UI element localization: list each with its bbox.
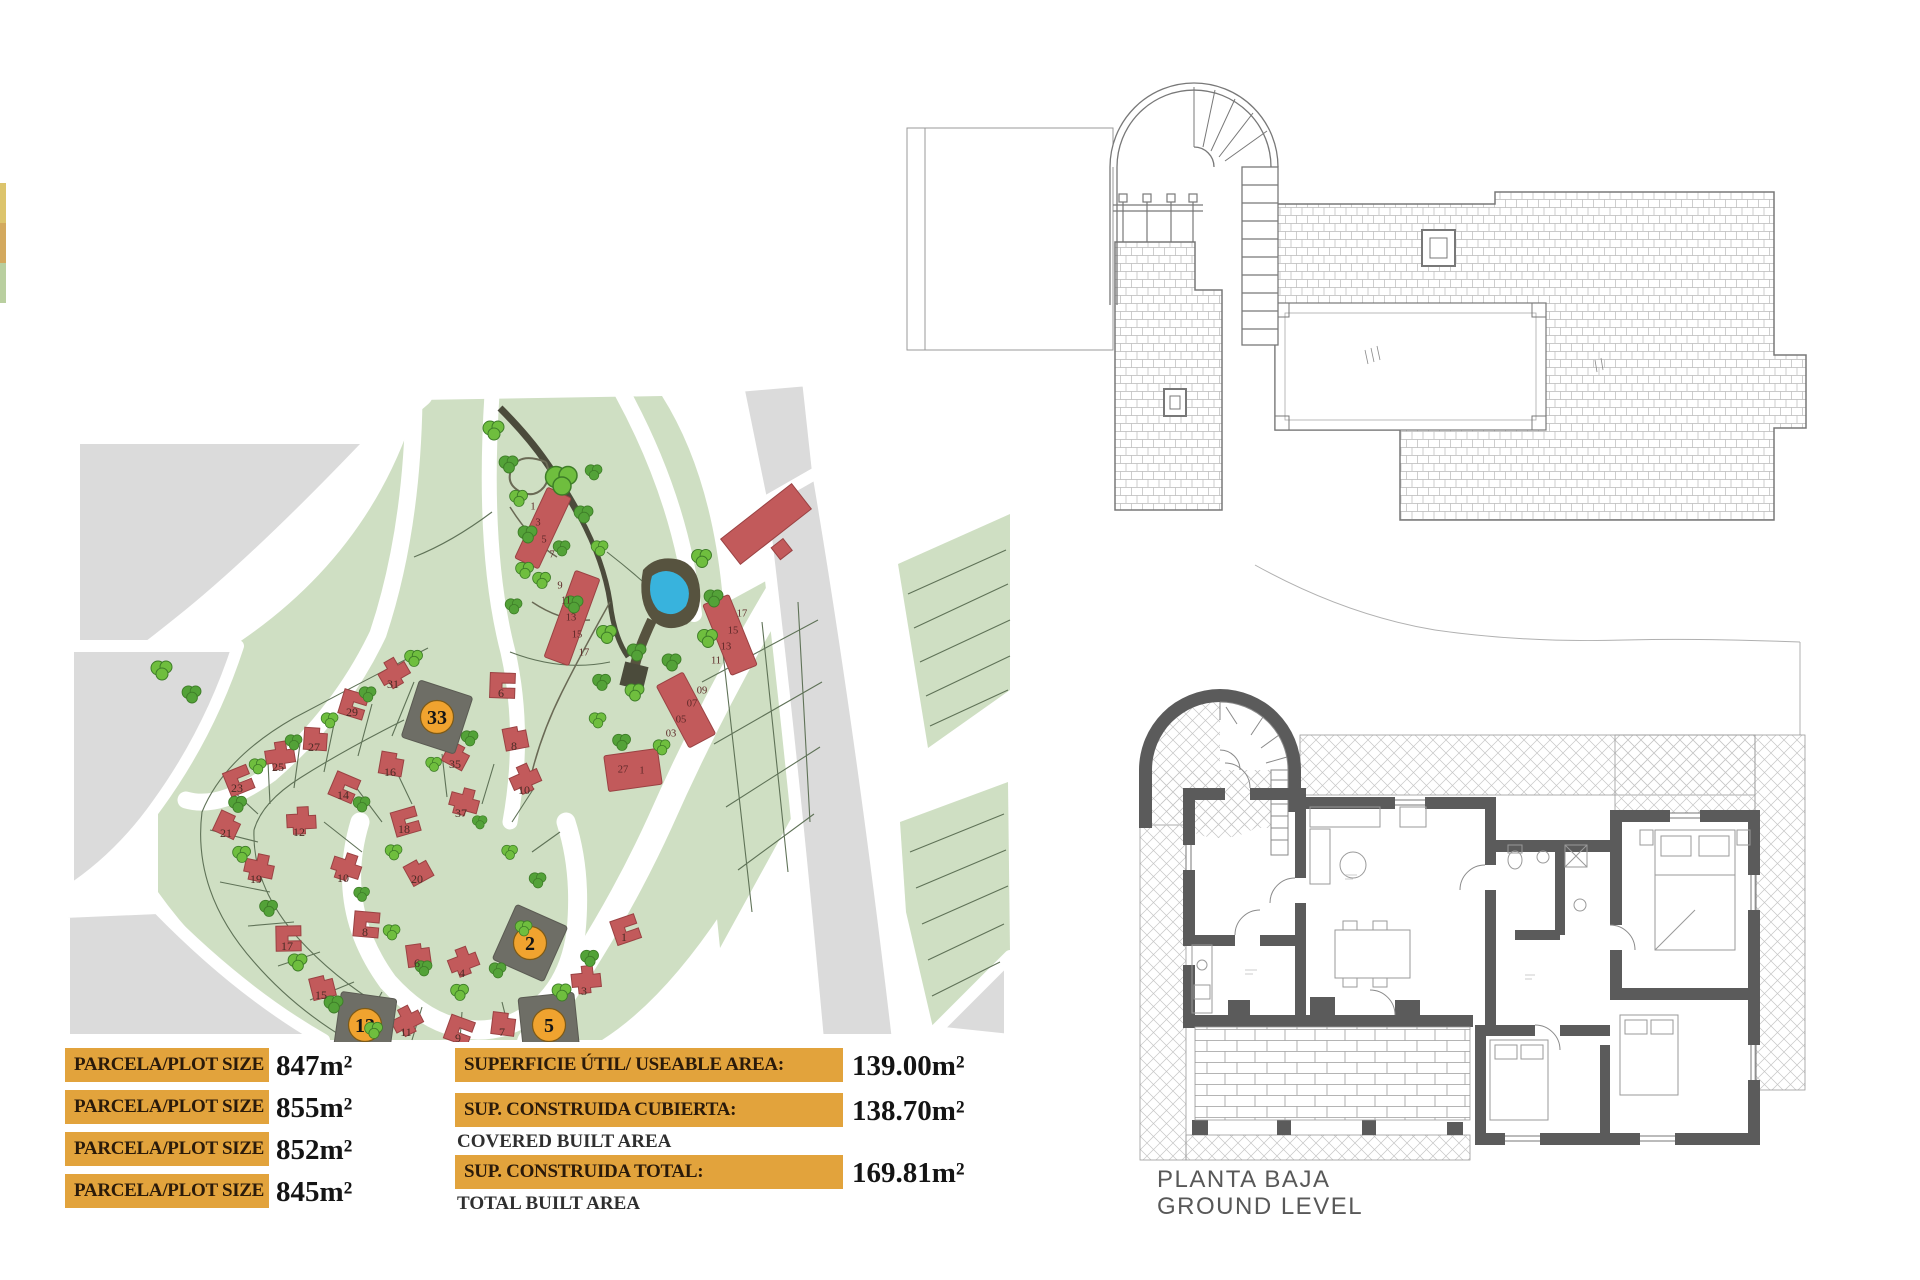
terrace-unit-5: 5 xyxy=(541,535,546,546)
floor-plan xyxy=(1095,545,1820,1190)
plot-size-bar-13: PARCELA/PLOT SIZE 13: xyxy=(65,1132,269,1166)
plot-number-23: 23 xyxy=(231,781,243,795)
plot-number-6: 6 xyxy=(498,686,504,700)
terrace-unit-07: 07 xyxy=(687,699,698,710)
plot-size-bar-2: PARCELA/PLOT SIZE 2: xyxy=(65,1090,269,1124)
terrace-unit-1: 1 xyxy=(639,766,644,777)
terrace-unit-3: 3 xyxy=(535,518,540,529)
plot-number-14: 14 xyxy=(337,788,349,802)
plot-size-value-13: 852m² xyxy=(276,1133,352,1167)
plot-number-19: 19 xyxy=(250,872,262,886)
plot-marker-number: 2 xyxy=(525,933,535,955)
terrace-unit-17: 17 xyxy=(737,609,748,620)
useable-area-bar: SUPERFICIE ÚTIL/ USEABLE AREA: xyxy=(455,1048,843,1082)
plot-number-20: 20 xyxy=(411,872,423,886)
plot-number-31: 31 xyxy=(387,677,399,691)
plot-number-27: 27 xyxy=(308,740,320,754)
pergola xyxy=(1113,194,1203,242)
terrace-unit-15: 15 xyxy=(728,626,739,637)
plot-number-15: 15 xyxy=(315,988,327,1002)
brochure-page: 332135 xyxy=(0,0,1920,1280)
scan-artifact xyxy=(0,183,6,303)
floor-plan-title-en: GROUND LEVEL xyxy=(1157,1193,1363,1220)
total-built-sublabel: TOTAL BUILT AREA xyxy=(457,1192,640,1216)
plot-size-bar-5: PARCELA/PLOT SIZE 5: xyxy=(65,1174,269,1208)
terrace-unit-05: 05 xyxy=(676,715,687,726)
plot-number-12: 12 xyxy=(293,825,305,839)
plot-number-21: 21 xyxy=(220,826,232,840)
plot-number-7: 7 xyxy=(499,1025,505,1039)
porch-paving xyxy=(1195,1027,1470,1120)
terrace-unit-11: 11 xyxy=(711,656,721,667)
covered-built-value: 138.70m² xyxy=(852,1094,965,1128)
floor-plan-title-es: PLANTA BAJA xyxy=(1157,1166,1363,1193)
covered-built-sublabel: COVERED BUILT AREA xyxy=(457,1130,671,1154)
plot-number-1: 1 xyxy=(621,930,627,944)
useable-area-value: 139.00m² xyxy=(852,1049,965,1083)
total-built-bar: SUP. CONSTRUIDA TOTAL: xyxy=(455,1155,843,1189)
plot-number-9: 9 xyxy=(455,1031,461,1042)
terrace-unit-7: 7 xyxy=(549,550,554,561)
plot-number-6: 6 xyxy=(414,956,420,970)
plot-marker-number: 5 xyxy=(544,1015,554,1037)
plot-number-35: 35 xyxy=(449,757,461,771)
plot-number-10: 10 xyxy=(518,783,530,797)
plot-number-8: 8 xyxy=(362,925,368,939)
terrace-unit-27: 27 xyxy=(618,765,629,776)
plot-number-18: 18 xyxy=(398,822,410,836)
roof-plan xyxy=(895,55,1810,525)
plot-size-bar-33: PARCELA/PLOT SIZE 33: xyxy=(65,1048,269,1082)
terrace-unit-17: 17 xyxy=(579,648,590,659)
site-boundary-line xyxy=(1255,565,1800,735)
plot-number-3: 3 xyxy=(581,984,587,998)
site-plan: 332135 xyxy=(62,352,1012,1042)
terrace-unit-15: 15 xyxy=(572,630,583,641)
plot-size-value-5: 845m² xyxy=(276,1175,352,1209)
terrace-unit-1: 1 xyxy=(530,502,535,513)
plot-size-value-2: 855m² xyxy=(276,1091,352,1125)
plot-marker-number: 33 xyxy=(427,707,447,729)
plot-number-11: 11 xyxy=(400,1025,412,1039)
terrace-unit-13: 13 xyxy=(721,642,732,653)
plot-number-16: 16 xyxy=(384,765,396,779)
plot-number-25: 25 xyxy=(272,760,284,774)
plot-number-17: 17 xyxy=(281,939,293,953)
plot-size-value-33: 847m² xyxy=(276,1049,352,1083)
terrace-unit-11: 11 xyxy=(561,596,571,607)
total-built-value: 169.81m² xyxy=(852,1156,965,1190)
terrace-unit-13: 13 xyxy=(566,613,577,624)
terrace-unit-03: 03 xyxy=(666,729,677,740)
plot-number-8: 8 xyxy=(511,739,517,753)
covered-built-bar: SUP. CONSTRUIDA CUBIERTA: xyxy=(455,1093,843,1127)
plot-number-37: 37 xyxy=(455,806,467,820)
terrace-unit-09: 09 xyxy=(697,686,708,697)
plot-number-4: 4 xyxy=(459,966,465,980)
floor-plan-title: PLANTA BAJA GROUND LEVEL xyxy=(1157,1166,1363,1220)
roof-terrace-outline xyxy=(907,128,1113,350)
plot-number-29: 29 xyxy=(346,705,358,719)
plot-marker-5: 5 xyxy=(518,992,580,1042)
plot-number-10: 10 xyxy=(337,871,349,885)
terrace-unit-9: 9 xyxy=(557,581,562,592)
